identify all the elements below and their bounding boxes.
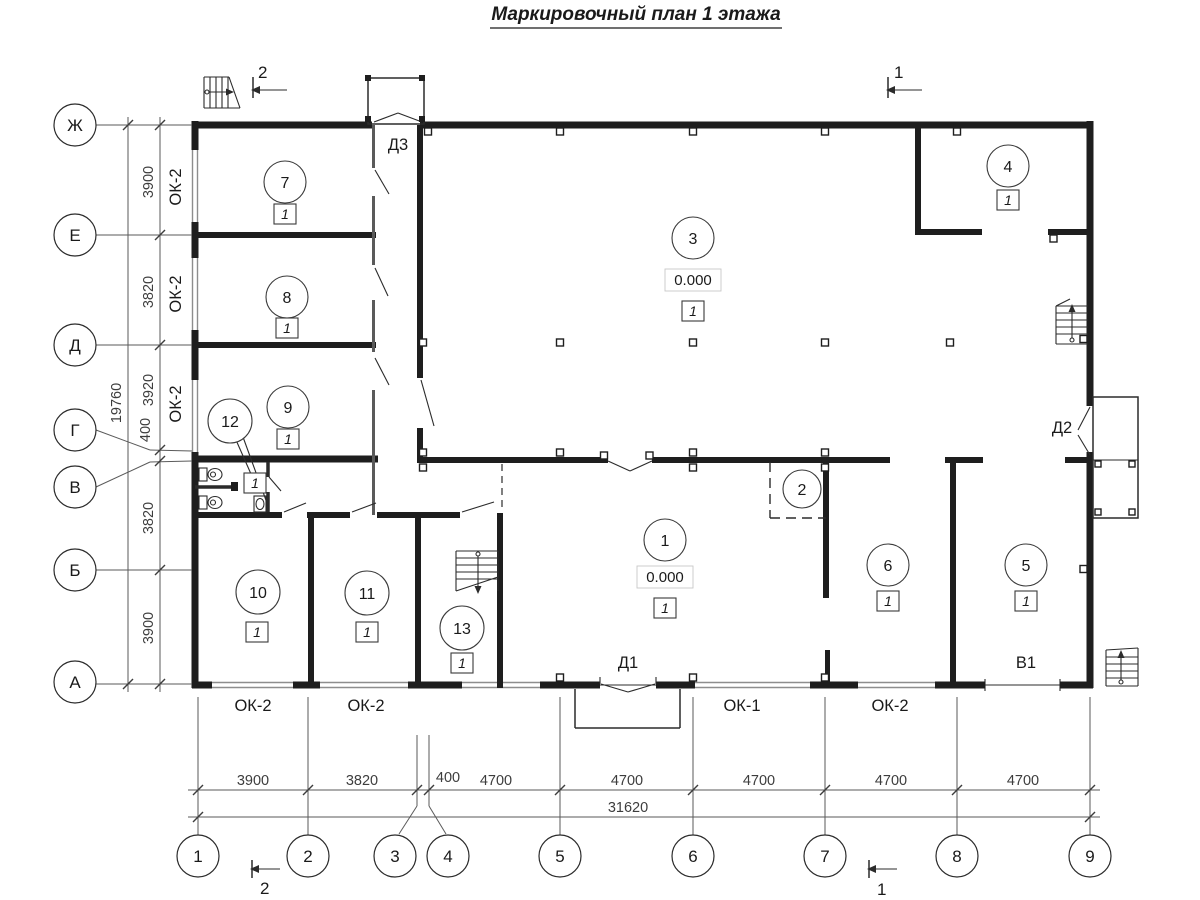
dim-label: 4700 — [875, 773, 907, 789]
dim-label: 3920 — [141, 374, 157, 406]
room-marks: 1 0.000 1 2 3 0.000 1 4 1 5 1 6 1 7 1 8 … — [208, 145, 1047, 673]
window-label: ОК-2 — [234, 697, 271, 715]
floor-type-mark: 1 — [458, 655, 466, 671]
axis-row-label: А — [69, 673, 81, 692]
dim-label: 4700 — [611, 773, 643, 789]
room-number: 4 — [1004, 159, 1013, 176]
floor-type-mark: 1 — [1004, 192, 1012, 208]
axis-col-label: 8 — [952, 847, 961, 866]
axis-col-label: 9 — [1085, 847, 1094, 866]
axis-row-label: Г — [70, 421, 79, 440]
dim-label: 4700 — [480, 773, 512, 789]
axis-col-label: 1 — [193, 847, 202, 866]
axis-col-label: 4 — [443, 847, 452, 866]
room-number: 7 — [281, 175, 290, 192]
dim-label: 3820 — [141, 502, 157, 534]
axis-row-label: В — [69, 478, 80, 497]
toilet — [199, 468, 222, 481]
room-number: 12 — [221, 414, 239, 431]
axis-col-label: 7 — [820, 847, 829, 866]
floor-type-mark: 1 — [253, 624, 261, 640]
toilet — [199, 496, 222, 509]
window-label: ОК-1 — [723, 697, 760, 715]
axis-row-label: Д — [69, 336, 81, 355]
window-label: ОК-2 — [167, 275, 185, 312]
section-label: 2 — [260, 879, 269, 898]
axis-row-label: Е — [69, 226, 80, 245]
dim-label: 3900 — [237, 773, 269, 789]
title: Маркировочный план 1 этажа — [490, 4, 782, 28]
section-mark-bottom-right: 1 — [867, 860, 897, 899]
axis-grid-bottom: 3900 3820 400 4700 4700 4700 4700 4700 3… — [177, 697, 1111, 877]
room-number: 13 — [453, 621, 471, 638]
axis-col-label: 5 — [555, 847, 564, 866]
floor-type-mark: 1 — [689, 303, 697, 319]
dim-label: 3820 — [346, 773, 378, 789]
sink — [254, 496, 266, 512]
floor-plan-canvas: Маркировочный план 1 этажа — [0, 0, 1200, 900]
stair-bottom-right — [1106, 648, 1138, 686]
dim-label: 400 — [436, 770, 460, 786]
floor-type-mark: 1 — [661, 600, 669, 616]
door-label: Д1 — [618, 654, 638, 672]
room-number: 6 — [884, 558, 893, 575]
stair-top-left — [204, 77, 240, 108]
floor-type-mark: 1 — [283, 320, 291, 336]
section-mark-bottom-left: 2 — [250, 860, 280, 898]
stair-room-13 — [456, 551, 498, 594]
section-label: 1 — [877, 880, 886, 899]
page-title: Маркировочный план 1 этажа — [491, 4, 781, 25]
dim-label: 3900 — [141, 166, 157, 198]
dim-total-label: 19760 — [109, 383, 125, 423]
dim-total-label: 31620 — [608, 800, 648, 816]
walls — [192, 121, 1093, 688]
dashed-boundaries — [502, 462, 826, 518]
section-mark-top-right: 1 — [886, 63, 922, 98]
door-leaves — [269, 113, 1090, 692]
dim-label: 4700 — [743, 773, 775, 789]
room-number: 9 — [284, 400, 293, 417]
room-number: 8 — [283, 290, 292, 307]
door-label: Д3 — [388, 136, 408, 154]
drawing-page: Маркировочный план 1 этажа — [0, 0, 1200, 900]
window-label: ОК-2 — [167, 168, 185, 205]
columns — [420, 128, 1088, 681]
room-number: 1 — [661, 533, 670, 550]
room-number: 3 — [689, 231, 698, 248]
section-label: 2 — [258, 63, 267, 82]
window-label: ОК-2 — [347, 697, 384, 715]
floor-type-mark: 1 — [884, 593, 892, 609]
dim-label: 3900 — [141, 612, 157, 644]
section-mark-top-left: 2 — [251, 63, 287, 98]
dim-label: 4700 — [1007, 773, 1039, 789]
section-label: 1 — [894, 63, 903, 82]
room-number: 5 — [1022, 558, 1031, 575]
room-number: 10 — [249, 585, 267, 602]
floor-type-mark: 1 — [1022, 593, 1030, 609]
axis-row-label: Ж — [67, 116, 83, 135]
dim-label: 3820 — [141, 276, 157, 308]
room-number: 2 — [798, 482, 807, 499]
floor-type-mark: 1 — [284, 431, 292, 447]
room-number: 11 — [359, 586, 376, 603]
opening-labels: ОК-2 ОК-2 ОК-2 ОК-2 ОК-2 ОК-1 ОК-2 Д3 Д1… — [167, 136, 1072, 715]
room-elevation: 0.000 — [674, 272, 712, 289]
window-label: ОК-2 — [167, 385, 185, 422]
floor-type-mark: 1 — [363, 624, 371, 640]
axis-row-label: Б — [69, 561, 80, 580]
floor-type-mark: 1 — [281, 206, 289, 222]
door-label: Д2 — [1052, 419, 1072, 437]
axis-col-label: 2 — [303, 847, 312, 866]
floor-type-mark: 1 — [251, 475, 259, 491]
axis-col-label: 3 — [390, 847, 399, 866]
window-label: ОК-2 — [871, 697, 908, 715]
gate-label: В1 — [1016, 654, 1036, 672]
axis-col-label: 6 — [688, 847, 697, 866]
dim-label: 400 — [138, 418, 154, 442]
room-elevation: 0.000 — [646, 569, 684, 586]
